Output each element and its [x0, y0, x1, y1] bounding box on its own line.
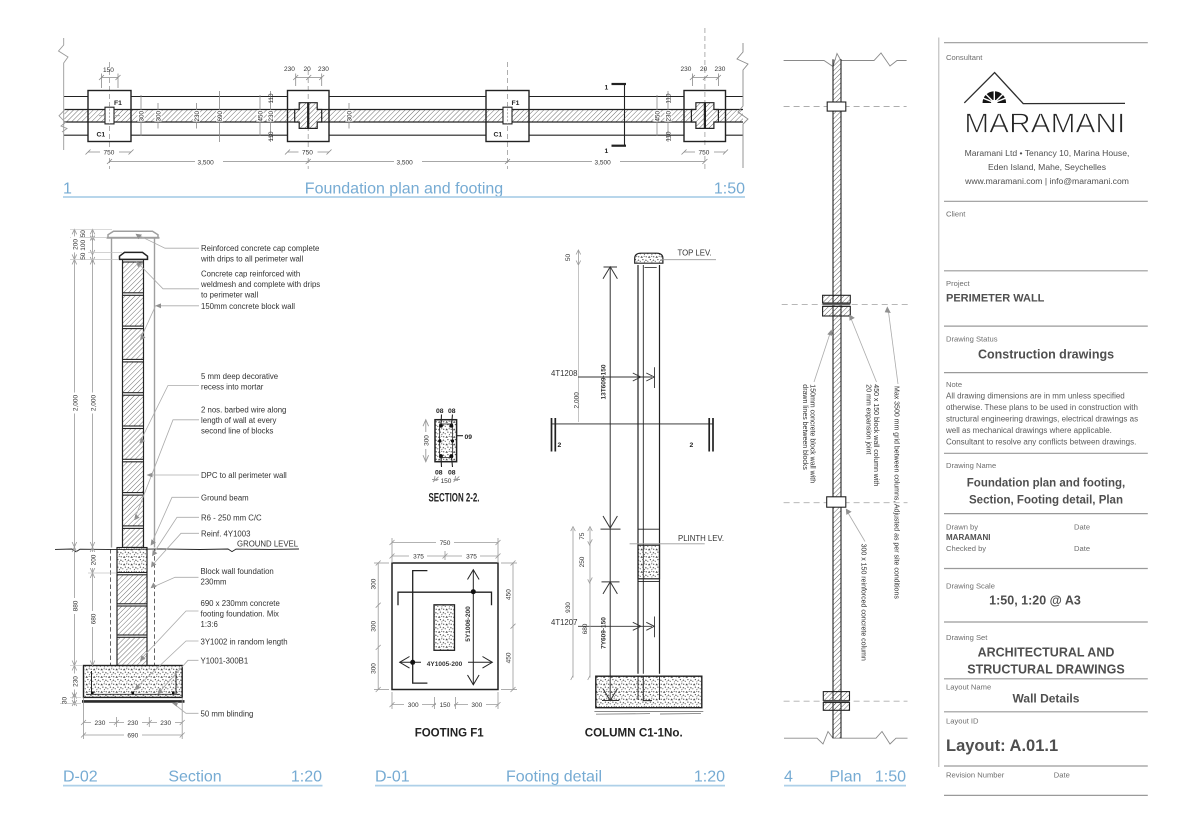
svg-text:5 mm deep decorative: 5 mm deep decorative — [201, 372, 278, 381]
svg-text:690: 690 — [127, 733, 138, 740]
svg-text:2: 2 — [690, 442, 694, 449]
svg-text:Drawing Status: Drawing Status — [946, 335, 998, 344]
svg-text:All drawing dimensions are in: All drawing dimensions are in mm unless … — [946, 392, 1125, 401]
svg-text:750: 750 — [699, 150, 710, 157]
svg-text:300: 300 — [139, 111, 146, 122]
svg-text:Date: Date — [1074, 544, 1090, 553]
svg-text:880: 880 — [72, 600, 79, 611]
svg-text:300: 300 — [423, 435, 430, 446]
svg-text:1: 1 — [63, 181, 72, 198]
svg-text:375: 375 — [413, 554, 424, 561]
svg-text:drawn lines between blocks: drawn lines between blocks — [801, 384, 808, 470]
svg-text:230: 230 — [160, 720, 171, 727]
svg-text:SECTION 2-2.: SECTION 2-2. — [429, 491, 480, 505]
svg-text:930: 930 — [565, 602, 572, 613]
svg-text:750: 750 — [302, 150, 313, 157]
svg-text:20: 20 — [304, 66, 312, 73]
svg-text:STRUCTURAL DRAWINGS: STRUCTURAL DRAWINGS — [967, 663, 1124, 677]
svg-text:50: 50 — [80, 252, 87, 260]
svg-text:450: 450 — [655, 111, 662, 122]
svg-text:1:50, 1:20 @ A3: 1:50, 1:20 @ A3 — [989, 594, 1081, 608]
svg-text:230: 230 — [715, 66, 726, 73]
svg-text:750: 750 — [440, 540, 451, 547]
svg-text:230: 230 — [284, 66, 295, 73]
svg-text:Maramani Ltd • Tenancy 10, Mar: Maramani Ltd • Tenancy 10, Marina House, — [965, 148, 1130, 158]
svg-text:GROUND LEVEL: GROUND LEVEL — [237, 540, 299, 549]
svg-text:Construction drawings: Construction drawings — [978, 348, 1114, 362]
svg-text:300: 300 — [156, 111, 163, 122]
svg-text:2,000: 2,000 — [91, 394, 98, 411]
svg-text:Concrete cap reinforced with: Concrete cap reinforced with — [201, 270, 300, 279]
svg-text:4T1208: 4T1208 — [551, 369, 577, 378]
svg-text:100: 100 — [80, 239, 87, 250]
svg-text:150mm concrete block wall: 150mm concrete block wall — [201, 302, 295, 311]
svg-text:D-02: D-02 — [63, 769, 98, 786]
svg-text:Project: Project — [946, 279, 971, 288]
svg-text:230: 230 — [268, 111, 275, 122]
svg-text:110: 110 — [666, 131, 673, 142]
svg-text:FOOTING F1: FOOTING F1 — [415, 726, 484, 740]
svg-text:Wall Details: Wall Details — [1013, 692, 1080, 706]
svg-text:Max 3500 mm grid between colum: Max 3500 mm grid between columns, Adjust… — [893, 386, 900, 599]
svg-text:150: 150 — [440, 702, 451, 709]
svg-text:3,500: 3,500 — [595, 160, 612, 167]
svg-text:Foundation plan and footing,: Foundation plan and footing, — [967, 478, 1125, 490]
svg-text:weldmesh and complete with dri: weldmesh and complete with drips — [200, 280, 320, 289]
svg-text:50 mm blinding: 50 mm blinding — [201, 710, 254, 719]
svg-text:to perimeter wall: to perimeter wall — [201, 291, 258, 300]
svg-text:C1: C1 — [97, 132, 106, 139]
svg-text:Drawn by: Drawn by — [946, 523, 978, 532]
svg-text:www.maramani.com | info@marama: www.maramani.com | info@maramani.com — [964, 176, 1129, 186]
svg-text:DPC to all perimeter wall: DPC to all perimeter wall — [201, 471, 287, 480]
svg-text:1:20: 1:20 — [694, 769, 725, 786]
svg-text:Layout ID: Layout ID — [946, 717, 979, 726]
svg-text:230mm: 230mm — [201, 578, 227, 587]
svg-text:footing foundation. Mix: footing foundation. Mix — [201, 610, 280, 619]
svg-text:3,500: 3,500 — [397, 160, 414, 167]
svg-text:otherwise. These plans to be u: otherwise. These plans to be used in con… — [946, 403, 1138, 412]
svg-text:1:50: 1:50 — [714, 181, 745, 198]
svg-text:F1: F1 — [114, 100, 122, 107]
svg-text:09: 09 — [465, 434, 473, 441]
svg-text:4: 4 — [784, 769, 793, 786]
svg-text:450: 450 — [506, 589, 513, 600]
svg-text:Client: Client — [946, 210, 966, 219]
svg-text:2: 2 — [558, 442, 562, 449]
svg-text:length of wall at every: length of wall at every — [201, 416, 277, 425]
svg-text:300: 300 — [371, 620, 378, 631]
svg-text:08: 08 — [436, 408, 444, 415]
svg-text:4T1207: 4T1207 — [551, 618, 577, 627]
svg-text:structural engineering drawing: structural engineering drawings, electri… — [946, 415, 1138, 424]
svg-text:300: 300 — [371, 663, 378, 674]
svg-text:20 mm expansion joint: 20 mm expansion joint — [865, 384, 872, 454]
svg-text:75: 75 — [579, 532, 586, 540]
svg-text:150mm concrete block wall with: 150mm concrete block wall with — [809, 384, 816, 483]
svg-text:Plan: Plan — [829, 769, 861, 786]
svg-text:3,500: 3,500 — [198, 160, 215, 167]
svg-text:450 x 150 block wall column wi: 450 x 150 block wall column with — [872, 384, 879, 486]
svg-text:1:20: 1:20 — [291, 769, 322, 786]
svg-text:680: 680 — [582, 623, 589, 634]
svg-text:Date: Date — [1054, 771, 1070, 780]
svg-text:Layout: A.01.1: Layout: A.01.1 — [946, 737, 1058, 755]
svg-text:20: 20 — [700, 66, 708, 73]
svg-text:200: 200 — [91, 554, 98, 565]
svg-text:300: 300 — [371, 578, 378, 589]
svg-text:R6 - 250 mm C/C: R6 - 250 mm C/C — [201, 514, 262, 523]
svg-text:750: 750 — [104, 150, 115, 157]
svg-text:Layout Name: Layout Name — [946, 683, 991, 692]
svg-text:Checked by: Checked by — [946, 544, 986, 553]
svg-text:MARAMANI: MARAMANI — [964, 108, 1125, 139]
svg-text:230: 230 — [127, 720, 138, 727]
svg-text:Drawing Set: Drawing Set — [946, 633, 988, 642]
svg-text:450: 450 — [506, 652, 513, 663]
svg-text:110: 110 — [268, 131, 275, 142]
svg-text:1:50: 1:50 — [875, 769, 906, 786]
svg-text:08: 08 — [448, 408, 456, 415]
svg-text:375: 375 — [466, 554, 477, 561]
svg-text:Block wall foundation: Block wall foundation — [201, 567, 274, 576]
svg-text:230: 230 — [94, 720, 105, 727]
svg-text:Date: Date — [1074, 523, 1090, 532]
svg-text:Revision Number: Revision Number — [946, 771, 1005, 780]
svg-text:with drips to all perimeter wa: with drips to all perimeter wall — [200, 255, 304, 264]
svg-text:Consultant to resolve any conf: Consultant to resolve any conflicts betw… — [946, 438, 1136, 447]
svg-text:230: 230 — [681, 66, 692, 73]
svg-text:200: 200 — [72, 239, 79, 250]
svg-text:230: 230 — [666, 111, 673, 122]
svg-text:4Y1005-200: 4Y1005-200 — [427, 661, 463, 668]
svg-text:110: 110 — [666, 93, 673, 104]
svg-text:680: 680 — [91, 613, 98, 624]
svg-text:Section: Section — [168, 769, 221, 786]
svg-text:MARAMANI: MARAMANI — [946, 533, 990, 542]
svg-text:Footing detail: Footing detail — [506, 769, 602, 786]
svg-text:2,000: 2,000 — [573, 392, 580, 409]
svg-text:1: 1 — [605, 85, 609, 92]
svg-text:Drawing Scale: Drawing Scale — [946, 582, 995, 591]
svg-text:7Y609-150: 7Y609-150 — [601, 617, 608, 649]
svg-text:250: 250 — [579, 556, 586, 567]
svg-text:2 nos. barbed wire along: 2 nos. barbed wire along — [201, 406, 286, 415]
svg-text:Section, Footing detail, Plan: Section, Footing detail, Plan — [969, 495, 1123, 507]
svg-text:30: 30 — [62, 697, 69, 705]
svg-text:C1: C1 — [494, 132, 503, 139]
svg-text:Note: Note — [946, 380, 962, 389]
svg-text:50: 50 — [565, 254, 572, 262]
svg-text:1:3:6: 1:3:6 — [201, 620, 218, 629]
svg-text:690 x 230mm concrete: 690 x 230mm concrete — [201, 599, 280, 608]
svg-text:Eden Island, Mahe, Seychelles: Eden Island, Mahe, Seychelles — [988, 162, 1106, 172]
svg-text:ARCHITECTURAL AND: ARCHITECTURAL AND — [978, 646, 1115, 660]
svg-text:Drawing Name: Drawing Name — [946, 461, 996, 470]
svg-text:Consultant: Consultant — [946, 53, 983, 62]
svg-text:Ground beam: Ground beam — [201, 494, 249, 503]
svg-text:Y1001-300B1: Y1001-300B1 — [201, 657, 249, 666]
svg-text:230: 230 — [318, 66, 329, 73]
svg-text:TOP LEV.: TOP LEV. — [678, 249, 712, 258]
svg-text:second line of blocks: second line of blocks — [201, 427, 273, 436]
svg-text:F1: F1 — [512, 100, 520, 107]
svg-text:300: 300 — [408, 702, 419, 709]
svg-text:Foundation plan and footing: Foundation plan and footing — [305, 181, 503, 198]
svg-text:well as mechanical drawings wh: well as mechanical drawings where applic… — [945, 426, 1112, 435]
svg-text:300: 300 — [347, 111, 354, 122]
svg-text:150: 150 — [103, 67, 114, 74]
svg-text:Reinforced concrete cap comple: Reinforced concrete cap complete — [201, 244, 319, 253]
svg-text:110: 110 — [268, 93, 275, 104]
svg-text:690: 690 — [217, 111, 224, 122]
svg-text:13T609-150: 13T609-150 — [601, 364, 608, 399]
svg-text:1: 1 — [605, 148, 609, 155]
svg-text:recess into mortar: recess into mortar — [201, 383, 264, 392]
svg-text:COLUMN C1-1No.: COLUMN C1-1No. — [585, 726, 683, 740]
svg-text:PLINTH LEV.: PLINTH LEV. — [678, 534, 724, 543]
svg-text:Reinf. 4Y1003: Reinf. 4Y1003 — [201, 530, 250, 539]
svg-text:230: 230 — [72, 676, 79, 687]
svg-text:300: 300 — [471, 702, 482, 709]
svg-text:150: 150 — [441, 478, 452, 485]
svg-text:PERIMETER WALL: PERIMETER WALL — [946, 293, 1045, 305]
svg-text:3Y1002 in random length: 3Y1002 in random length — [201, 638, 288, 647]
svg-text:50: 50 — [80, 230, 87, 238]
svg-text:230: 230 — [194, 111, 201, 122]
svg-text:450: 450 — [258, 111, 265, 122]
svg-text:2,000: 2,000 — [72, 394, 79, 411]
svg-text:300 x 150 reinforced concrete: 300 x 150 reinforced concrete column — [860, 544, 867, 661]
svg-text:D-01: D-01 — [375, 769, 410, 786]
svg-text:5Y1006-200: 5Y1006-200 — [465, 606, 472, 642]
